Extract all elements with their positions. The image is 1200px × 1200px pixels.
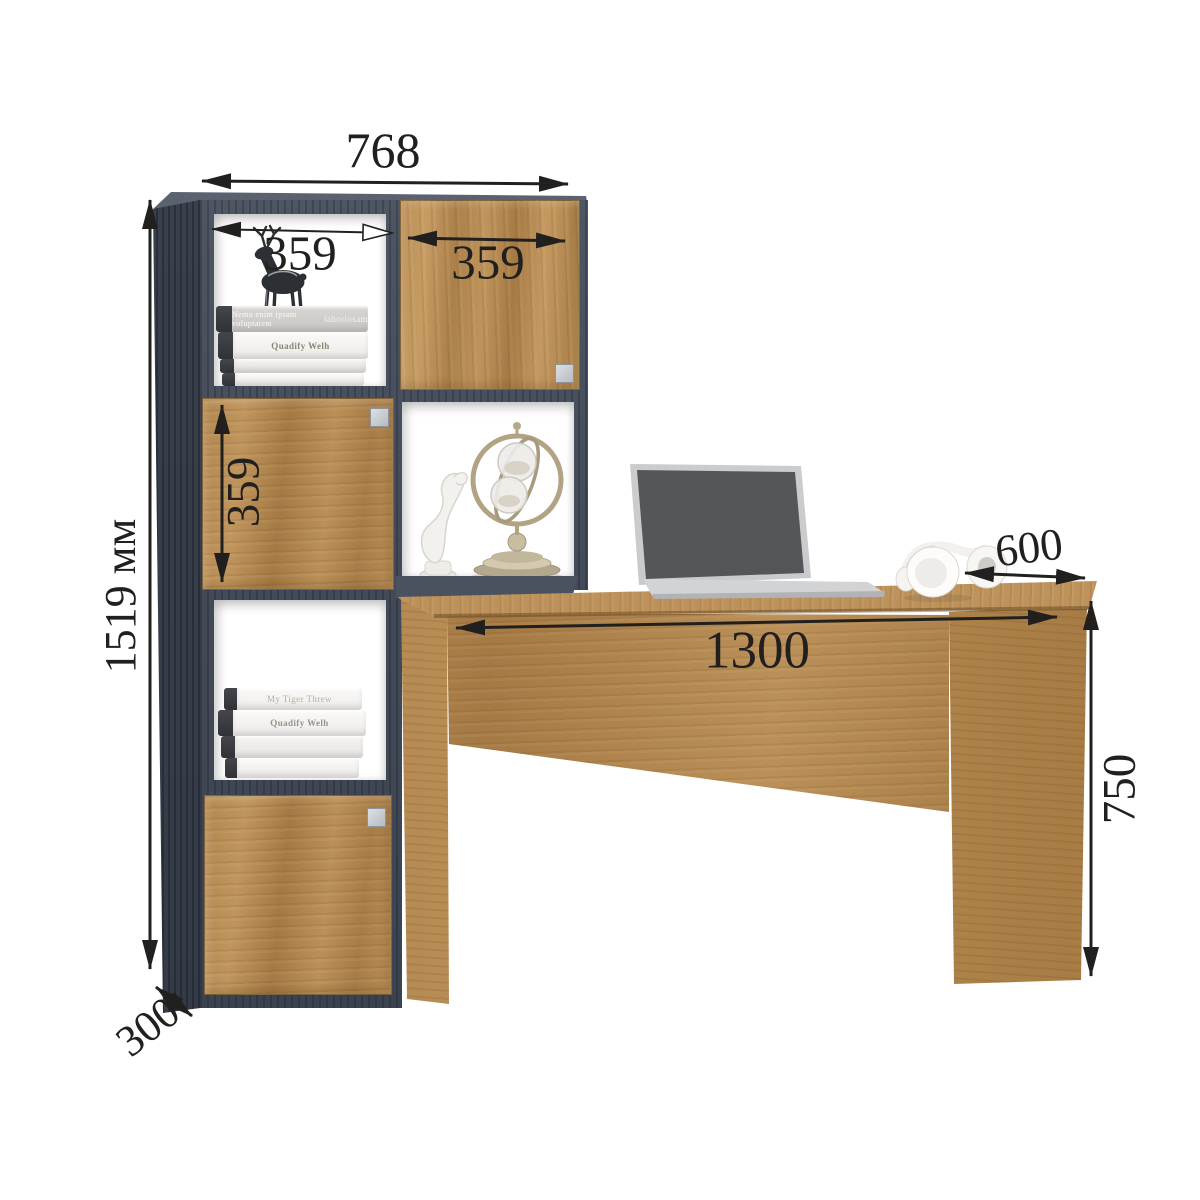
dim-arrow-shelf-width xyxy=(202,181,568,184)
dim-label-cell-width: 359 xyxy=(263,229,337,278)
dim-label-desk-length: 1300 xyxy=(704,625,810,678)
dim-label-desk-height: 750 xyxy=(1097,754,1144,825)
dim-label-door-height: 359 xyxy=(221,457,268,528)
furniture-dimension-diagram: Nemo enim ipsam voluptatem laboriosam Qu… xyxy=(0,0,1200,1200)
dim-label-door-width: 359 xyxy=(451,238,525,287)
dim-label-shelf-width: 768 xyxy=(346,125,421,175)
dim-label-shelf-height: 1519 мм xyxy=(99,519,143,674)
dim-label-desk-depth: 600 xyxy=(993,522,1065,575)
dim-arrow-desk-depth xyxy=(965,573,1085,578)
